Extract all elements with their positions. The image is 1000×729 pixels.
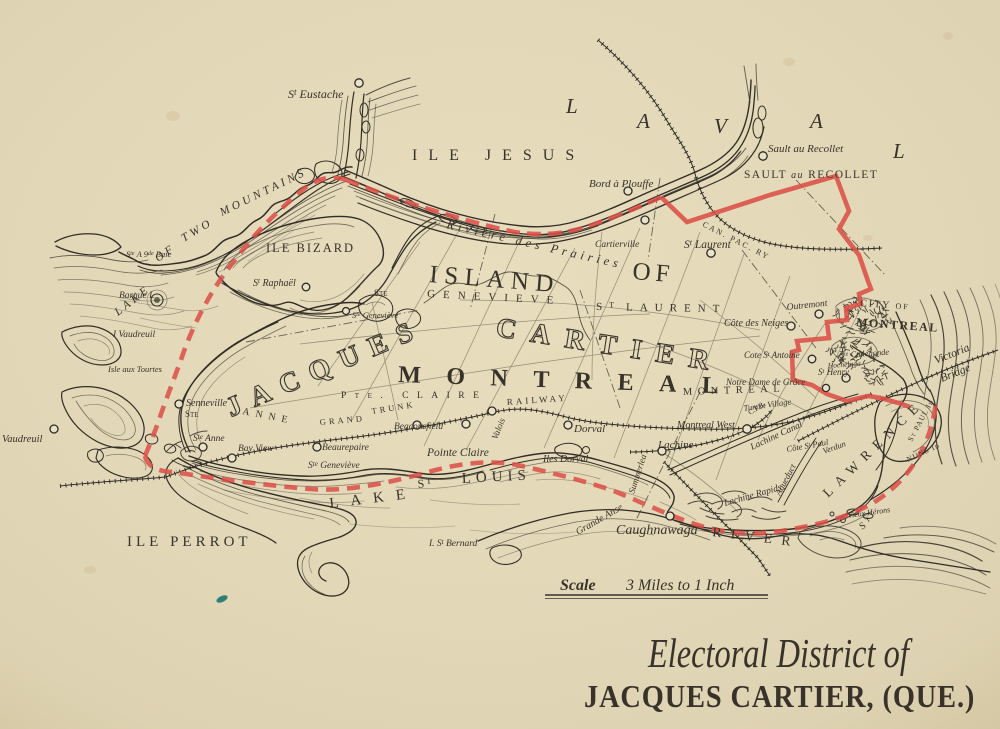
svg-text:3 Miles to 1 Inch: 3 Miles to 1 Inch: [625, 577, 734, 594]
svg-text:Montreal West: Montreal West: [676, 420, 735, 431]
svg-text:St Eustache: St Eustache: [288, 87, 344, 101]
svg-text:Sault au Recollet: Sault au Recollet: [768, 143, 844, 155]
svg-text:A: A: [808, 109, 823, 133]
svg-text:SAULT au RECOLLET: SAULT au RECOLLET: [744, 169, 878, 181]
svg-text:Barque I.: Barque I.: [119, 291, 155, 301]
svg-text:Beaconsfield: Beaconsfield: [394, 421, 443, 432]
svg-text:STE: STE: [374, 288, 388, 298]
svg-text:Dorval: Dorval: [573, 423, 605, 435]
svg-text:Bay View: Bay View: [238, 444, 274, 454]
svg-text:ILE PERROT: ILE PERROT: [127, 534, 252, 550]
svg-text:Electoral District of: Electoral District of: [647, 630, 913, 675]
svg-text:Senneville: Senneville: [186, 398, 228, 409]
svg-text:Iles Dorval: Iles Dorval: [542, 454, 588, 465]
svg-text:OF: OF: [632, 258, 676, 288]
svg-text:Notre Dame de Grâce: Notre Dame de Grâce: [725, 377, 805, 387]
svg-text:Lachine: Lachine: [657, 439, 694, 451]
svg-text:Scale: Scale: [560, 577, 596, 594]
svg-text:L: L: [892, 139, 905, 163]
svg-text:JACQUES CARTIER, (QUE.): JACQUES CARTIER, (QUE.): [584, 680, 975, 715]
svg-text:Isle aux Tourtes: Isle aux Tourtes: [107, 364, 163, 374]
svg-text:St Laurent: St Laurent: [684, 238, 732, 251]
svg-text:V: V: [714, 114, 729, 138]
svg-text:I. St Bernard: I. St Bernard: [428, 538, 478, 549]
svg-text:Bord à Plouffe: Bord à Plouffe: [589, 178, 653, 190]
svg-text:I Vaudreuil: I Vaudreuil: [112, 330, 155, 340]
svg-text:ILE JESUS: ILE JESUS: [412, 147, 585, 164]
svg-text:Ste Anne: Ste Anne: [193, 433, 225, 444]
svg-text:Côte des Neiges: Côte des Neiges: [724, 318, 789, 329]
svg-text:L: L: [565, 94, 578, 118]
svg-text:Beaurepaire: Beaurepaire: [322, 443, 369, 453]
svg-text:ILE BIZARD: ILE BIZARD: [266, 241, 355, 255]
svg-text:Cartierville: Cartierville: [595, 240, 639, 250]
svg-text:Vaudreuil: Vaudreuil: [2, 434, 43, 445]
svg-text:Caughnawaga: Caughnawaga: [616, 523, 698, 538]
svg-text:STE: STE: [185, 409, 199, 419]
svg-text:St Raphaël: St Raphaël: [253, 277, 296, 289]
svg-text:Pointe Claire: Pointe Claire: [426, 447, 489, 459]
svg-text:A: A: [635, 109, 650, 133]
svg-text:Cote St Antoine: Cote St Antoine: [744, 350, 800, 360]
